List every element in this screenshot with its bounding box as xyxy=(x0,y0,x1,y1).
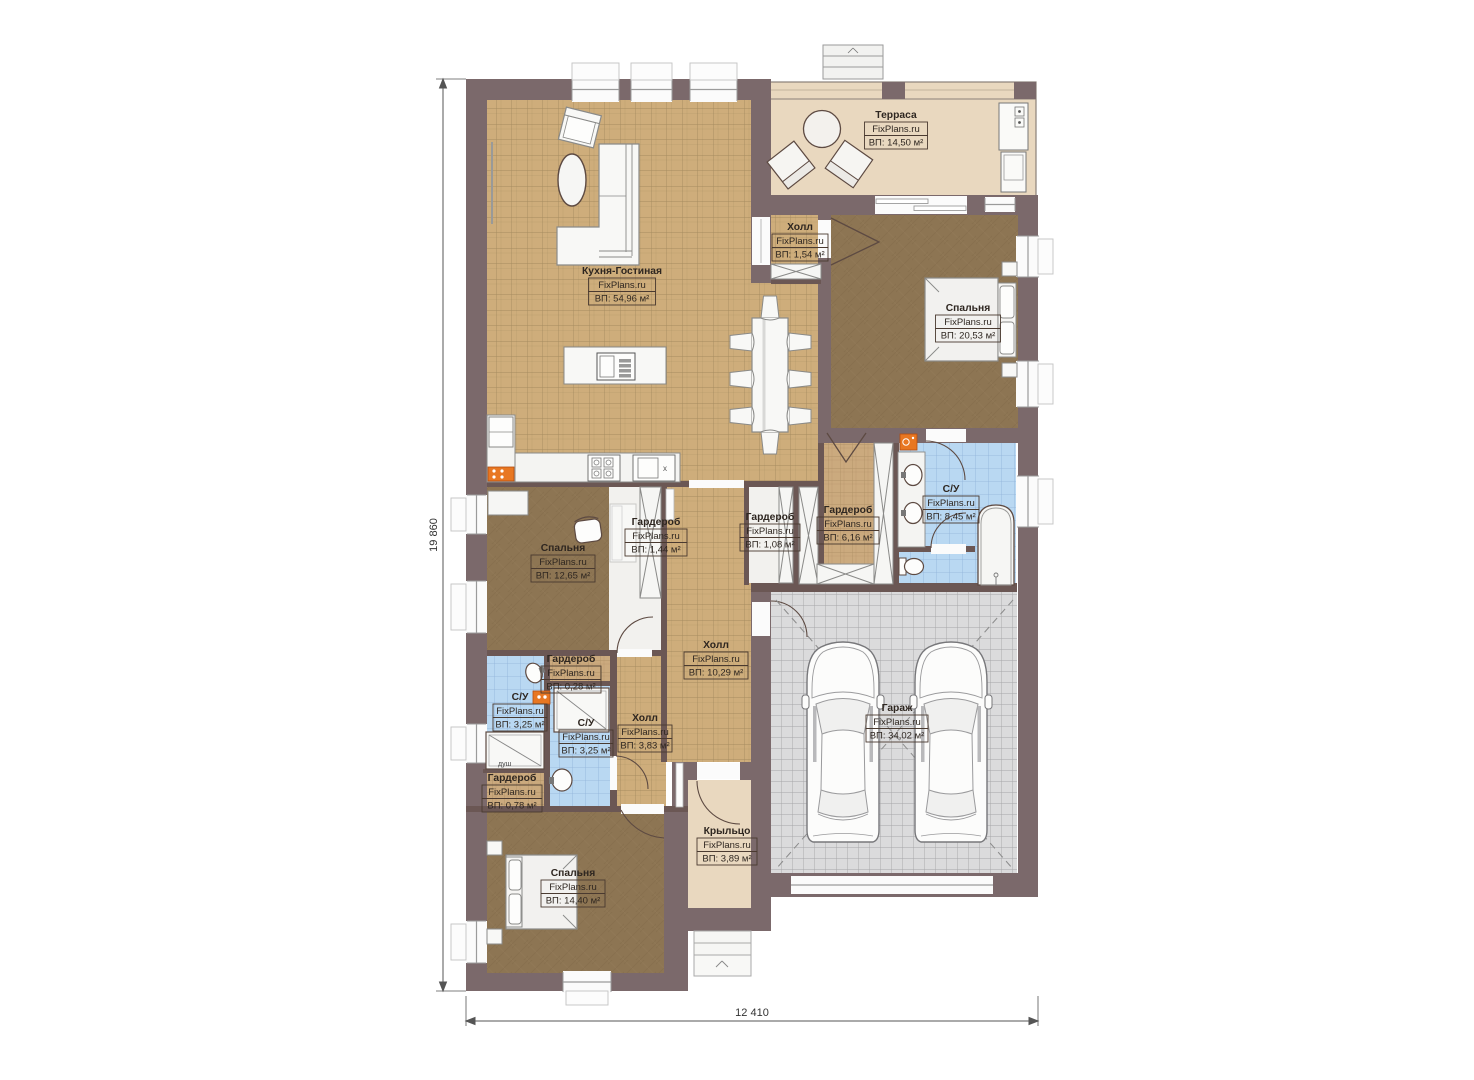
svg-text:ВП: 10,29 м²: ВП: 10,29 м² xyxy=(689,668,744,679)
svg-text:ВП: 3,25 м²: ВП: 3,25 м² xyxy=(495,720,544,731)
svg-text:12 410: 12 410 xyxy=(735,1007,769,1019)
svg-text:FixPlans.ru: FixPlans.ru xyxy=(692,654,740,665)
svg-text:FixPlans.ru: FixPlans.ru xyxy=(562,732,610,743)
svg-text:Холл: Холл xyxy=(787,222,813,233)
svg-text:ВП: 3,25 м²: ВП: 3,25 м² xyxy=(561,746,610,757)
svg-text:ВП: 54,96 м²: ВП: 54,96 м² xyxy=(595,294,650,305)
svg-text:FixPlans.ru: FixPlans.ru xyxy=(547,668,595,679)
svg-text:Гараж: Гараж xyxy=(882,703,913,714)
svg-text:Спальня: Спальня xyxy=(946,303,990,314)
svg-text:FixPlans.ru: FixPlans.ru xyxy=(488,787,536,798)
svg-text:ВП: 3,89 м²: ВП: 3,89 м² xyxy=(702,854,751,865)
svg-text:FixPlans.ru: FixPlans.ru xyxy=(824,519,872,530)
svg-text:Холл: Холл xyxy=(632,713,658,724)
svg-text:FixPlans.ru: FixPlans.ru xyxy=(927,498,975,509)
svg-text:FixPlans.ru: FixPlans.ru xyxy=(539,557,587,568)
svg-text:Гардероб: Гардероб xyxy=(746,511,795,523)
svg-text:ВП: 1,08 м²: ВП: 1,08 м² xyxy=(745,540,794,551)
svg-text:ВП: 0,28 м²: ВП: 0,28 м² xyxy=(546,682,595,693)
svg-text:Гардероб: Гардероб xyxy=(488,772,537,784)
svg-text:С/У: С/У xyxy=(943,484,960,495)
svg-text:FixPlans.ru: FixPlans.ru xyxy=(632,531,680,542)
svg-text:ВП: 3,83 м²: ВП: 3,83 м² xyxy=(620,741,669,752)
svg-text:19 860: 19 860 xyxy=(428,518,440,552)
svg-text:ВП: 0,78 м²: ВП: 0,78 м² xyxy=(487,801,536,812)
svg-text:ВП: 14,40 м²: ВП: 14,40 м² xyxy=(546,896,601,907)
svg-text:Холл: Холл xyxy=(703,640,729,651)
svg-text:FixPlans.ru: FixPlans.ru xyxy=(621,727,669,738)
svg-text:FixPlans.ru: FixPlans.ru xyxy=(746,526,794,537)
svg-text:FixPlans.ru: FixPlans.ru xyxy=(496,706,544,717)
svg-text:FixPlans.ru: FixPlans.ru xyxy=(872,124,920,135)
svg-text:FixPlans.ru: FixPlans.ru xyxy=(549,882,597,893)
svg-text:Гардероб: Гардероб xyxy=(632,516,681,528)
svg-text:FixPlans.ru: FixPlans.ru xyxy=(598,280,646,291)
svg-text:Спальня: Спальня xyxy=(551,868,595,879)
svg-text:ВП: 14,50 м²: ВП: 14,50 м² xyxy=(869,138,924,149)
svg-text:ВП: 20,53 м²: ВП: 20,53 м² xyxy=(941,331,996,342)
svg-text:ВП: 8,45 м²: ВП: 8,45 м² xyxy=(926,512,975,523)
svg-text:ВП: 1,44 м²: ВП: 1,44 м² xyxy=(631,545,680,556)
svg-text:Спальня: Спальня xyxy=(541,543,585,554)
svg-text:Терраса: Терраса xyxy=(875,110,917,121)
svg-text:Гардероб: Гардероб xyxy=(824,504,873,516)
svg-text:ВП: 34,02 м²: ВП: 34,02 м² xyxy=(870,731,925,742)
svg-text:FixPlans.ru: FixPlans.ru xyxy=(776,236,824,247)
svg-text:С/У: С/У xyxy=(512,692,529,703)
svg-text:Крыльцо: Крыльцо xyxy=(704,826,751,837)
svg-text:Кухня-Гостиная: Кухня-Гостиная xyxy=(582,266,662,277)
svg-text:FixPlans.ru: FixPlans.ru xyxy=(873,717,921,728)
svg-text:ВП: 1,54 м²: ВП: 1,54 м² xyxy=(775,250,824,261)
svg-text:С/У: С/У xyxy=(578,718,595,729)
svg-text:FixPlans.ru: FixPlans.ru xyxy=(944,317,992,328)
svg-text:ВП: 12,65 м²: ВП: 12,65 м² xyxy=(536,571,591,582)
svg-text:x: x xyxy=(663,464,667,473)
svg-text:FixPlans.ru: FixPlans.ru xyxy=(703,840,751,851)
svg-text:ВП: 6,16 м²: ВП: 6,16 м² xyxy=(823,533,872,544)
svg-text:душ: душ xyxy=(498,761,512,768)
svg-text:Гардероб: Гардероб xyxy=(547,653,596,665)
